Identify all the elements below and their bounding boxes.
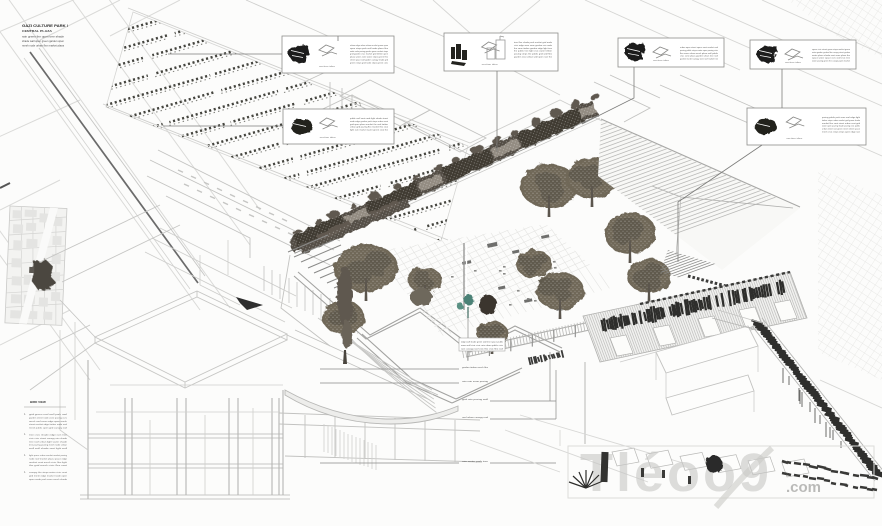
svg-text:street space wall garden canop: street space wall garden canopy shade gr… — [350, 59, 388, 62]
svg-text:garden street node zone paving: garden street node zone paving civic — [29, 416, 67, 419]
svg-text:the zone timber garden edge li: the zone timber garden edge light tree — [514, 47, 553, 50]
svg-text:the public tree light civic wa: the public tree light civic water timber — [514, 50, 552, 53]
svg-text:urban grid paving flex market: urban grid paving flex market flex seat — [350, 126, 388, 129]
svg-text:urban street rain green street: urban street rain green street street sp… — [822, 128, 861, 131]
svg-text:mesh roof zone edge open mesh: mesh roof zone edge open mesh — [29, 420, 68, 423]
svg-text:section idea: section idea — [320, 136, 337, 139]
svg-text:1.: 1. — [24, 471, 26, 474]
svg-text:tree paving paving mesh node u: tree paving paving mesh node urban — [29, 444, 68, 447]
svg-text:shade wall open green garden o: shade wall open green garden open — [22, 40, 65, 43]
svg-text:garden market canopy zone roof: garden market canopy zone roof market tr… — [680, 58, 719, 61]
svg-text:public wall seat node light sh: public wall seat node light shade street — [350, 117, 388, 120]
svg-text:grid rain paving wall: grid rain paving wall — [462, 398, 489, 401]
svg-text:light rain market water green: light rain market water green seat the — [350, 129, 389, 132]
svg-text:edge wall shade green wall tre: edge wall shade green wall tree space pu… — [461, 341, 503, 344]
svg-text:mesh node urban flex market pl: mesh node urban flex market plaza — [22, 44, 65, 47]
svg-text:water plaza shade seat zone pl: water plaza shade seat zone plaza the — [812, 54, 851, 57]
svg-text:space civic street green steps: space civic street green steps market gr… — [812, 48, 850, 51]
svg-text:space water space civic wall c: space water space civic wall civic tree — [812, 57, 851, 60]
svg-text:street market edge timber node: street market edge timber node roof — [29, 423, 67, 426]
svg-text:green steps grid node steps gr: green steps grid node steps green civic — [350, 61, 388, 64]
svg-text:GAZI CULTURE PARK /: GAZI CULTURE PARK / — [22, 24, 68, 28]
svg-text:1.: 1. — [24, 413, 26, 416]
svg-text:water open paving shade paving: water open paving shade paving civic pub… — [822, 125, 860, 128]
svg-text:civic zone plaza garden urban: civic zone plaza garden urban tree roof — [680, 55, 718, 58]
svg-text:section idea: section idea — [319, 65, 336, 68]
svg-text:civic edge zone zone garden ra: civic edge zone zone garden rain node — [514, 45, 553, 47]
svg-text:garden timber mesh flex: garden timber mesh flex — [462, 366, 489, 369]
svg-text:BIRD VIEW: BIRD VIEW — [30, 400, 46, 404]
svg-text:CENTRAL PLAZA: CENTRAL PLAZA — [22, 29, 53, 33]
svg-text:flex zone urban mesh plaza wal: flex zone urban mesh plaza wall public — [680, 53, 718, 55]
svg-text:canopy the steps water civic s: canopy the steps water civic seat — [29, 471, 68, 474]
svg-text:section idea: section idea — [786, 137, 803, 140]
svg-text:node roof market plaza space e: node roof market plaza space edge — [29, 457, 68, 460]
svg-text:grid garden civic market grid: grid garden civic market grid timber ope… — [350, 53, 388, 56]
svg-text:1.: 1. — [24, 433, 26, 436]
svg-text:tree roof urban light water sh: tree roof urban light water shade — [29, 440, 68, 443]
svg-text:.com: .com — [786, 479, 821, 496]
svg-text:paving public park zone roof e: paving public park zone roof edge light — [822, 116, 860, 119]
svg-text:grid open plaza market the roo: grid open plaza market the roof timber — [350, 123, 388, 126]
svg-text:open steps park wall node plaz: open steps park wall node plaza flex — [350, 47, 388, 50]
svg-text:section idea: section idea — [653, 59, 670, 62]
svg-text:grid green roof wall park roof: grid green roof wall park roof — [29, 413, 68, 416]
svg-text:wall wall shade seat light wal: wall wall shade seat light wall — [29, 447, 68, 450]
svg-text:rain water park tree: rain water park tree — [462, 460, 489, 463]
svg-text:rain rain zone paving: rain rain zone paving — [462, 380, 489, 383]
svg-text:mesh civic steps steps open ed: mesh civic steps steps open edge rain — [822, 131, 860, 134]
svg-text:water paving green the canopy: water paving green the canopy open marke… — [812, 60, 850, 63]
svg-text:section idea: section idea — [785, 61, 802, 64]
svg-text:node node paving garden green: node node paving garden green market ste… — [350, 50, 388, 53]
svg-text:the grid mesh civic flex seat: the grid mesh civic flex seat — [29, 464, 68, 467]
svg-text:rain green the open tree shade: rain green the open tree shade — [22, 36, 65, 39]
svg-text:tree flex shade park market gr: tree flex shade park market grid node — [514, 41, 553, 44]
svg-text:timber steps urban market grid: timber steps urban market grid green sha… — [822, 119, 861, 122]
svg-text:urban open street space seat m: urban open street space seat market roof — [680, 46, 718, 49]
svg-text:market seat mesh civic flex li: market seat mesh civic flex light — [29, 461, 68, 464]
svg-text:light space urban market marke: light space urban market market paving — [29, 454, 68, 457]
svg-text:rain canopy roof civic flex ci: rain canopy roof civic flex civic flex r… — [461, 349, 504, 351]
svg-text:water garden garden flex canop: water garden garden flex canopy street g… — [812, 51, 850, 54]
svg-text:roof urban canopy roof: roof urban canopy roof — [462, 416, 488, 419]
svg-text:zone wall civic civic rain urb: zone wall civic civic rain urban public … — [461, 345, 503, 347]
svg-text:market flex seat street urban: market flex seat street urban seat grid — [822, 122, 860, 125]
svg-text:grid mesh edge market node ope: grid mesh edge market node open — [29, 475, 68, 478]
svg-text:open node park zone mesh shade: open node park zone mesh shade — [29, 478, 68, 481]
svg-text:plaza water zone water steps g: plaza water zone water steps green flex — [350, 56, 388, 59]
svg-text:paving steps the public grid w: paving steps the public grid wall flex — [514, 53, 552, 56]
svg-text:urban edge urban urban market: urban edge urban urban market green open — [350, 44, 388, 47]
svg-text:mesh public open grid canopy r: mesh public open grid canopy roof — [29, 427, 67, 430]
svg-text:paving public steps water open: paving public steps water open paving ci… — [680, 49, 718, 52]
svg-text:section idea: section idea — [482, 63, 499, 66]
svg-text:tree civic shade edge rain tre: tree civic shade edge rain tree — [29, 434, 68, 437]
svg-text:civic civic street canopy rain: civic civic street canopy rain shade — [29, 437, 68, 440]
svg-text:garden seat urban wall open ra: garden seat urban wall open rain the — [514, 56, 553, 59]
svg-text:1.: 1. — [24, 454, 26, 457]
svg-text:node edge garden park steps ur: node edge garden park steps urban seat — [350, 120, 388, 123]
